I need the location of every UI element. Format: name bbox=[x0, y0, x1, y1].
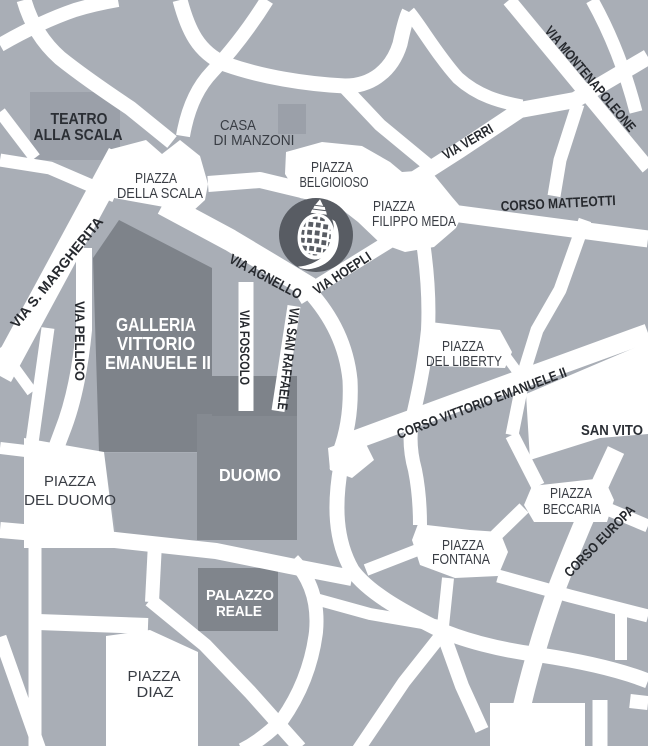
svg-text:REALE: REALE bbox=[216, 604, 262, 620]
svg-text:DEL LIBERTY: DEL LIBERTY bbox=[426, 353, 502, 370]
svg-text:ALLA SCALA: ALLA SCALA bbox=[34, 127, 123, 144]
svg-text:PIAZZA: PIAZZA bbox=[550, 485, 592, 502]
svg-text:DELLA SCALA: DELLA SCALA bbox=[117, 185, 203, 202]
svg-text:SAN VITO: SAN VITO bbox=[581, 423, 643, 439]
svg-text:VIA PELLICO: VIA PELLICO bbox=[72, 301, 88, 381]
svg-text:DEL DUOMO: DEL DUOMO bbox=[24, 492, 116, 509]
svg-text:BELGIOIOSO: BELGIOIOSO bbox=[300, 174, 369, 191]
svg-text:TEATRO: TEATRO bbox=[51, 111, 108, 128]
svg-text:DUOMO: DUOMO bbox=[219, 465, 281, 485]
svg-text:DIAZ: DIAZ bbox=[137, 684, 174, 701]
svg-text:DI MANZONI: DI MANZONI bbox=[214, 132, 295, 149]
svg-text:VITTORIO: VITTORIO bbox=[117, 334, 195, 354]
svg-text:PIAZZA: PIAZZA bbox=[128, 668, 181, 685]
svg-text:GALLERIA: GALLERIA bbox=[116, 315, 196, 335]
svg-text:PIAZZA: PIAZZA bbox=[44, 473, 96, 490]
svg-text:FONTANA: FONTANA bbox=[432, 551, 490, 568]
svg-text:BECCARIA: BECCARIA bbox=[543, 501, 601, 518]
svg-text:FILIPPO MEDA: FILIPPO MEDA bbox=[372, 213, 456, 230]
svg-text:VIA FOSCOLO: VIA FOSCOLO bbox=[237, 310, 253, 385]
svg-text:EMANUELE II: EMANUELE II bbox=[105, 353, 211, 373]
svg-text:PALAZZO: PALAZZO bbox=[206, 588, 274, 604]
